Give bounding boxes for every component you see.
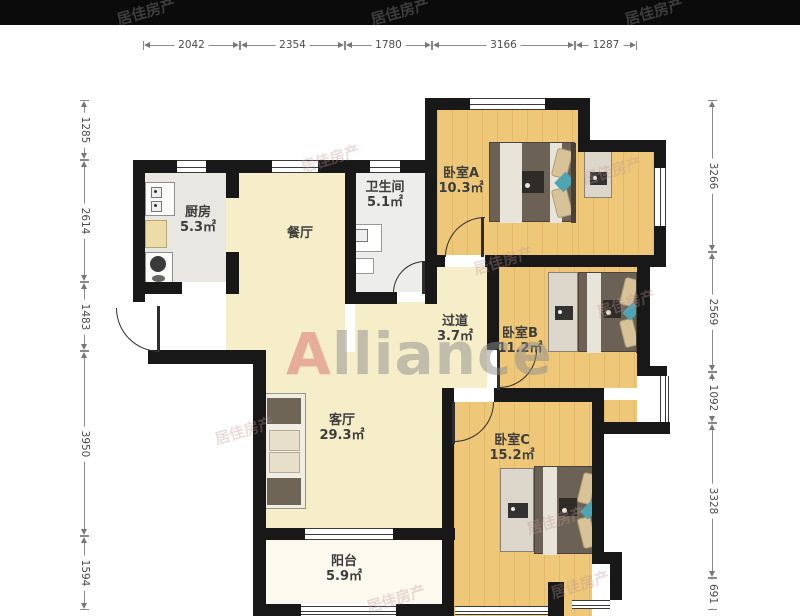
wardrobe-handle: [555, 306, 573, 320]
washbasin: [355, 229, 368, 242]
balcony-label: 阳台 5.9㎡: [314, 554, 374, 584]
sofa-cushion: [269, 430, 300, 451]
bed-linen: [500, 143, 522, 223]
dim-left-3: 1483: [78, 282, 92, 351]
window: [572, 600, 610, 609]
bathroom-door-leaf: [422, 261, 425, 294]
dim-top-4: 3166: [432, 39, 575, 53]
room-name: 客厅: [329, 413, 355, 428]
room-name: 厨房: [185, 205, 211, 220]
bedroom-c-door-leaf: [452, 402, 455, 444]
wall: [425, 98, 470, 110]
bed-quilt: [522, 171, 544, 193]
wall: [133, 160, 145, 302]
room-name: 餐厅: [287, 226, 313, 241]
room-area: 5.9㎡: [326, 569, 362, 584]
window: [177, 160, 206, 173]
kitchen-stove: [145, 252, 173, 284]
room-area: 10.3㎡: [438, 181, 483, 196]
dim-left-5: 1594: [78, 536, 92, 610]
dim-top-2: 2354: [240, 39, 345, 53]
wall: [494, 388, 604, 402]
bay-window: [660, 376, 669, 422]
wall: [253, 528, 305, 540]
living-label: 客厅 29.3㎡: [308, 413, 376, 443]
wall: [610, 552, 622, 600]
alliance-letter-a: A: [286, 320, 332, 388]
dim-top-5: 1287: [575, 39, 637, 53]
wardrobe-handle: [508, 503, 528, 518]
alliance-watermark: Alliance: [286, 320, 553, 388]
floor-plan-image: 居佳房产 居佳房产 居佳房产: [0, 0, 800, 616]
wall: [637, 267, 650, 366]
window: [370, 160, 400, 173]
stove-burner: [150, 256, 166, 272]
bedroom-a-label: 卧室A 10.3㎡: [428, 166, 494, 196]
watermark-text: 居佳房产: [368, 0, 431, 25]
dim-right-2: 2569: [706, 252, 720, 372]
wall: [133, 282, 182, 294]
bedroom-c-label: 卧室C 15.2㎡: [480, 433, 544, 463]
wall: [253, 604, 301, 616]
wall: [578, 140, 666, 152]
sink-basin: [151, 187, 162, 198]
room-area: 29.3㎡: [319, 428, 364, 443]
wall: [425, 98, 437, 304]
stove-pot: [152, 275, 165, 282]
alliance-rest: lliance: [332, 320, 553, 388]
top-letterbox-bar: 居佳房产 居佳房产 居佳房产: [0, 0, 800, 25]
wardrobe: [500, 468, 534, 552]
balcony-sliding-door: [305, 528, 393, 540]
sofa-cushion: [269, 452, 300, 473]
wall: [592, 400, 604, 558]
dim-left-4: 3950: [78, 351, 92, 536]
sofa-cushion: [267, 478, 301, 505]
room-name: 卧室A: [443, 166, 479, 181]
room-area: 5.1㎡: [367, 195, 403, 210]
dim-top-1: 2042: [143, 39, 240, 53]
room-name: 阳台: [331, 554, 357, 569]
headboard: [571, 143, 576, 223]
kitchen-label: 厨房 5.3㎡: [158, 205, 238, 235]
wall: [253, 350, 266, 616]
sofa: [263, 393, 306, 509]
wall: [594, 422, 670, 434]
wall: [345, 292, 397, 304]
dim-right-4: 3328: [706, 423, 720, 578]
wall: [654, 140, 666, 168]
wall: [226, 172, 239, 198]
dim-left-2: 2614: [78, 160, 92, 282]
room-area: 5.3㎡: [180, 220, 216, 235]
watermark-text: 居佳房产: [622, 0, 685, 25]
dim-top-3: 1780: [345, 39, 432, 53]
bedroom-b-floor: [604, 400, 637, 422]
room-name: 卧室C: [494, 433, 530, 448]
window: [654, 168, 666, 226]
wall: [226, 252, 239, 294]
wall: [425, 255, 445, 267]
wall: [148, 350, 266, 364]
entry-door-leaf: [157, 306, 160, 352]
wall: [393, 528, 455, 540]
bed: [489, 142, 575, 222]
window: [455, 606, 548, 615]
dining-label: 餐厅: [270, 226, 330, 241]
watermark-text: 居佳房产: [114, 0, 177, 25]
dim-right-1: 3266: [706, 100, 720, 252]
entry-door-arc: [116, 308, 160, 352]
bathroom-label: 卫生间 5.1㎡: [352, 180, 418, 210]
dim-left-1: 1285: [78, 100, 92, 160]
room-area: 15.2㎡: [489, 448, 534, 463]
wall: [206, 160, 272, 173]
wall: [637, 366, 667, 376]
room-name: 卫生间: [365, 180, 404, 195]
bedroom-a-door-leaf: [481, 217, 484, 257]
dim-right-5: 691: [706, 578, 720, 610]
window: [470, 98, 545, 110]
dim-right-3: 1092: [706, 372, 720, 423]
